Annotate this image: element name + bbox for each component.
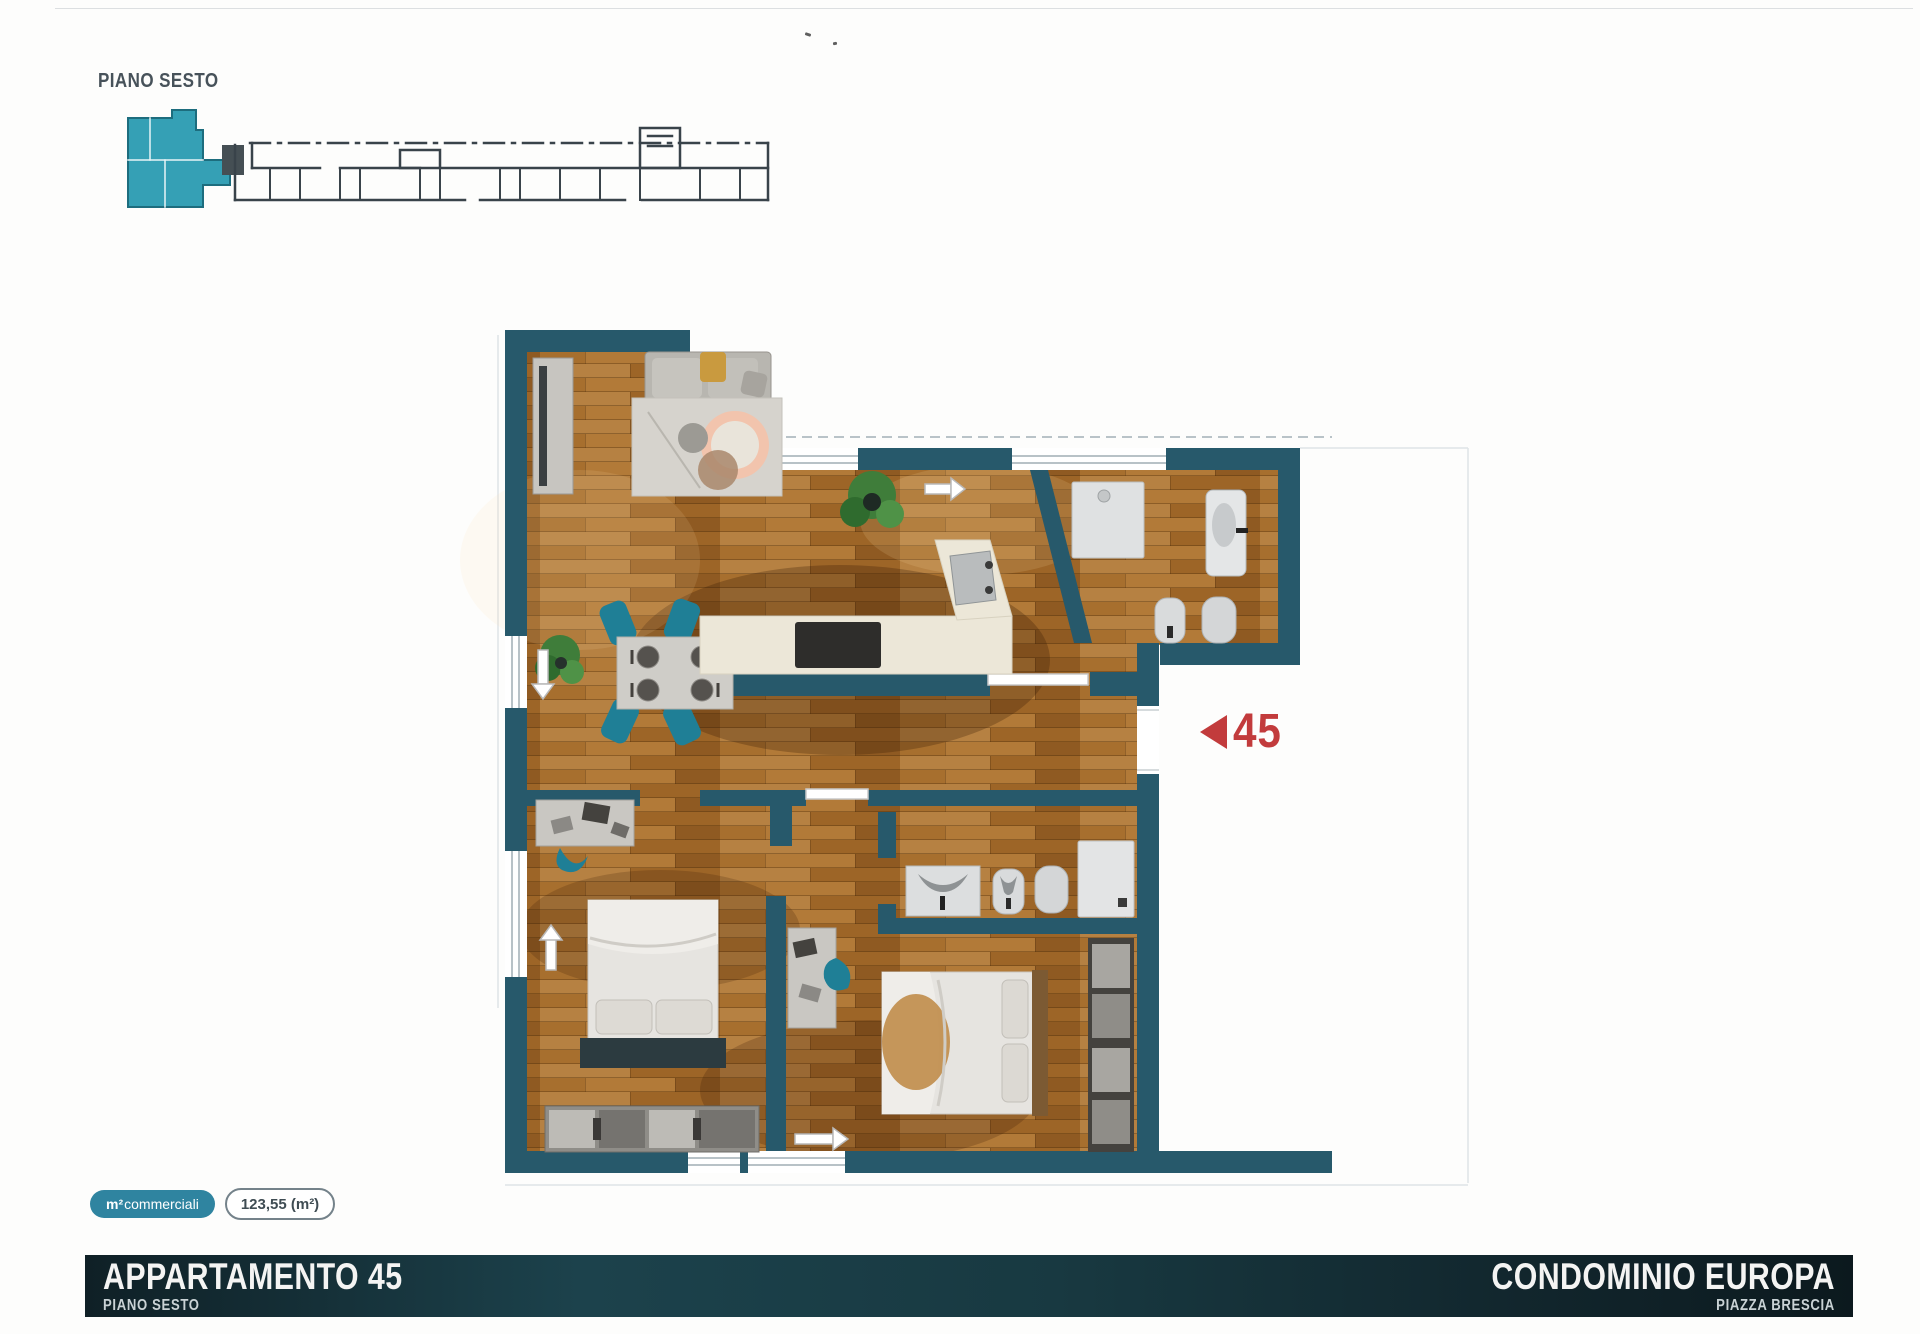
toilet bbox=[1035, 866, 1068, 913]
open-door-leaf bbox=[988, 674, 1088, 685]
throw-blanket bbox=[700, 352, 726, 382]
balcony-glazing bbox=[1012, 448, 1166, 470]
shower-tray bbox=[1078, 841, 1134, 917]
toilet bbox=[1202, 597, 1236, 643]
commercial-label: commerciali bbox=[124, 1196, 199, 1212]
entrance-arrow-icon bbox=[1200, 715, 1227, 749]
entrance-unit-marker: 45 bbox=[1200, 708, 1288, 756]
shower-tray bbox=[1072, 482, 1144, 558]
footer-left: APPARTAMENTO 45 PIANO SESTO bbox=[103, 1258, 402, 1314]
bed-headboard bbox=[580, 1038, 726, 1068]
scanned-floorplan-sheet: PIANO SESTO bbox=[0, 0, 1920, 1334]
area-value-badge: 123,55 (m²) bbox=[225, 1188, 335, 1220]
unit-number: 45 bbox=[1233, 708, 1282, 756]
project-location: PIAZZA BRESCIA bbox=[1716, 1298, 1835, 1314]
sofa bbox=[645, 352, 771, 404]
rug bbox=[632, 398, 782, 496]
cooktop bbox=[795, 622, 881, 668]
commercial-area-badge: m²commerciali bbox=[90, 1190, 215, 1218]
footer-banner: APPARTAMENTO 45 PIANO SESTO CONDOMINIO E… bbox=[85, 1255, 1853, 1317]
key-plan bbox=[128, 110, 768, 207]
window bbox=[748, 1151, 845, 1173]
key-plan-unit-45-highlight bbox=[128, 110, 230, 207]
apartment-floor: PIANO SESTO bbox=[103, 1298, 200, 1314]
apartment-title: APPARTAMENTO 45 bbox=[103, 1258, 402, 1295]
sink bbox=[1206, 490, 1248, 576]
m2-prefix: m² bbox=[106, 1196, 123, 1212]
open-door-leaf bbox=[806, 789, 868, 799]
tv-sideboard bbox=[533, 358, 573, 494]
window bbox=[505, 636, 527, 708]
wardrobe bbox=[545, 1106, 759, 1152]
bed-headboard bbox=[1032, 970, 1048, 1116]
floorplan-graphics bbox=[0, 0, 1920, 1334]
project-title: CONDOMINIO EUROPA bbox=[1491, 1258, 1835, 1295]
key-plan-building-outline bbox=[235, 128, 768, 200]
window bbox=[505, 851, 527, 977]
entrance-door-opening bbox=[1137, 706, 1159, 774]
throw-blanket bbox=[882, 994, 950, 1090]
area-badges: m²commerciali 123,55 (m²) bbox=[90, 1188, 335, 1220]
footer-right: CONDOMINIO EUROPA PIAZZA BRESCIA bbox=[1491, 1258, 1835, 1314]
bidet bbox=[993, 869, 1024, 914]
bidet bbox=[1155, 598, 1185, 643]
sink bbox=[906, 866, 980, 916]
wardrobe bbox=[1088, 938, 1134, 1152]
key-plan-stair-core bbox=[222, 145, 244, 175]
double-bed bbox=[882, 970, 1048, 1116]
double-bed bbox=[580, 900, 726, 1068]
kitchen-sink bbox=[950, 551, 996, 605]
window bbox=[688, 1151, 740, 1173]
